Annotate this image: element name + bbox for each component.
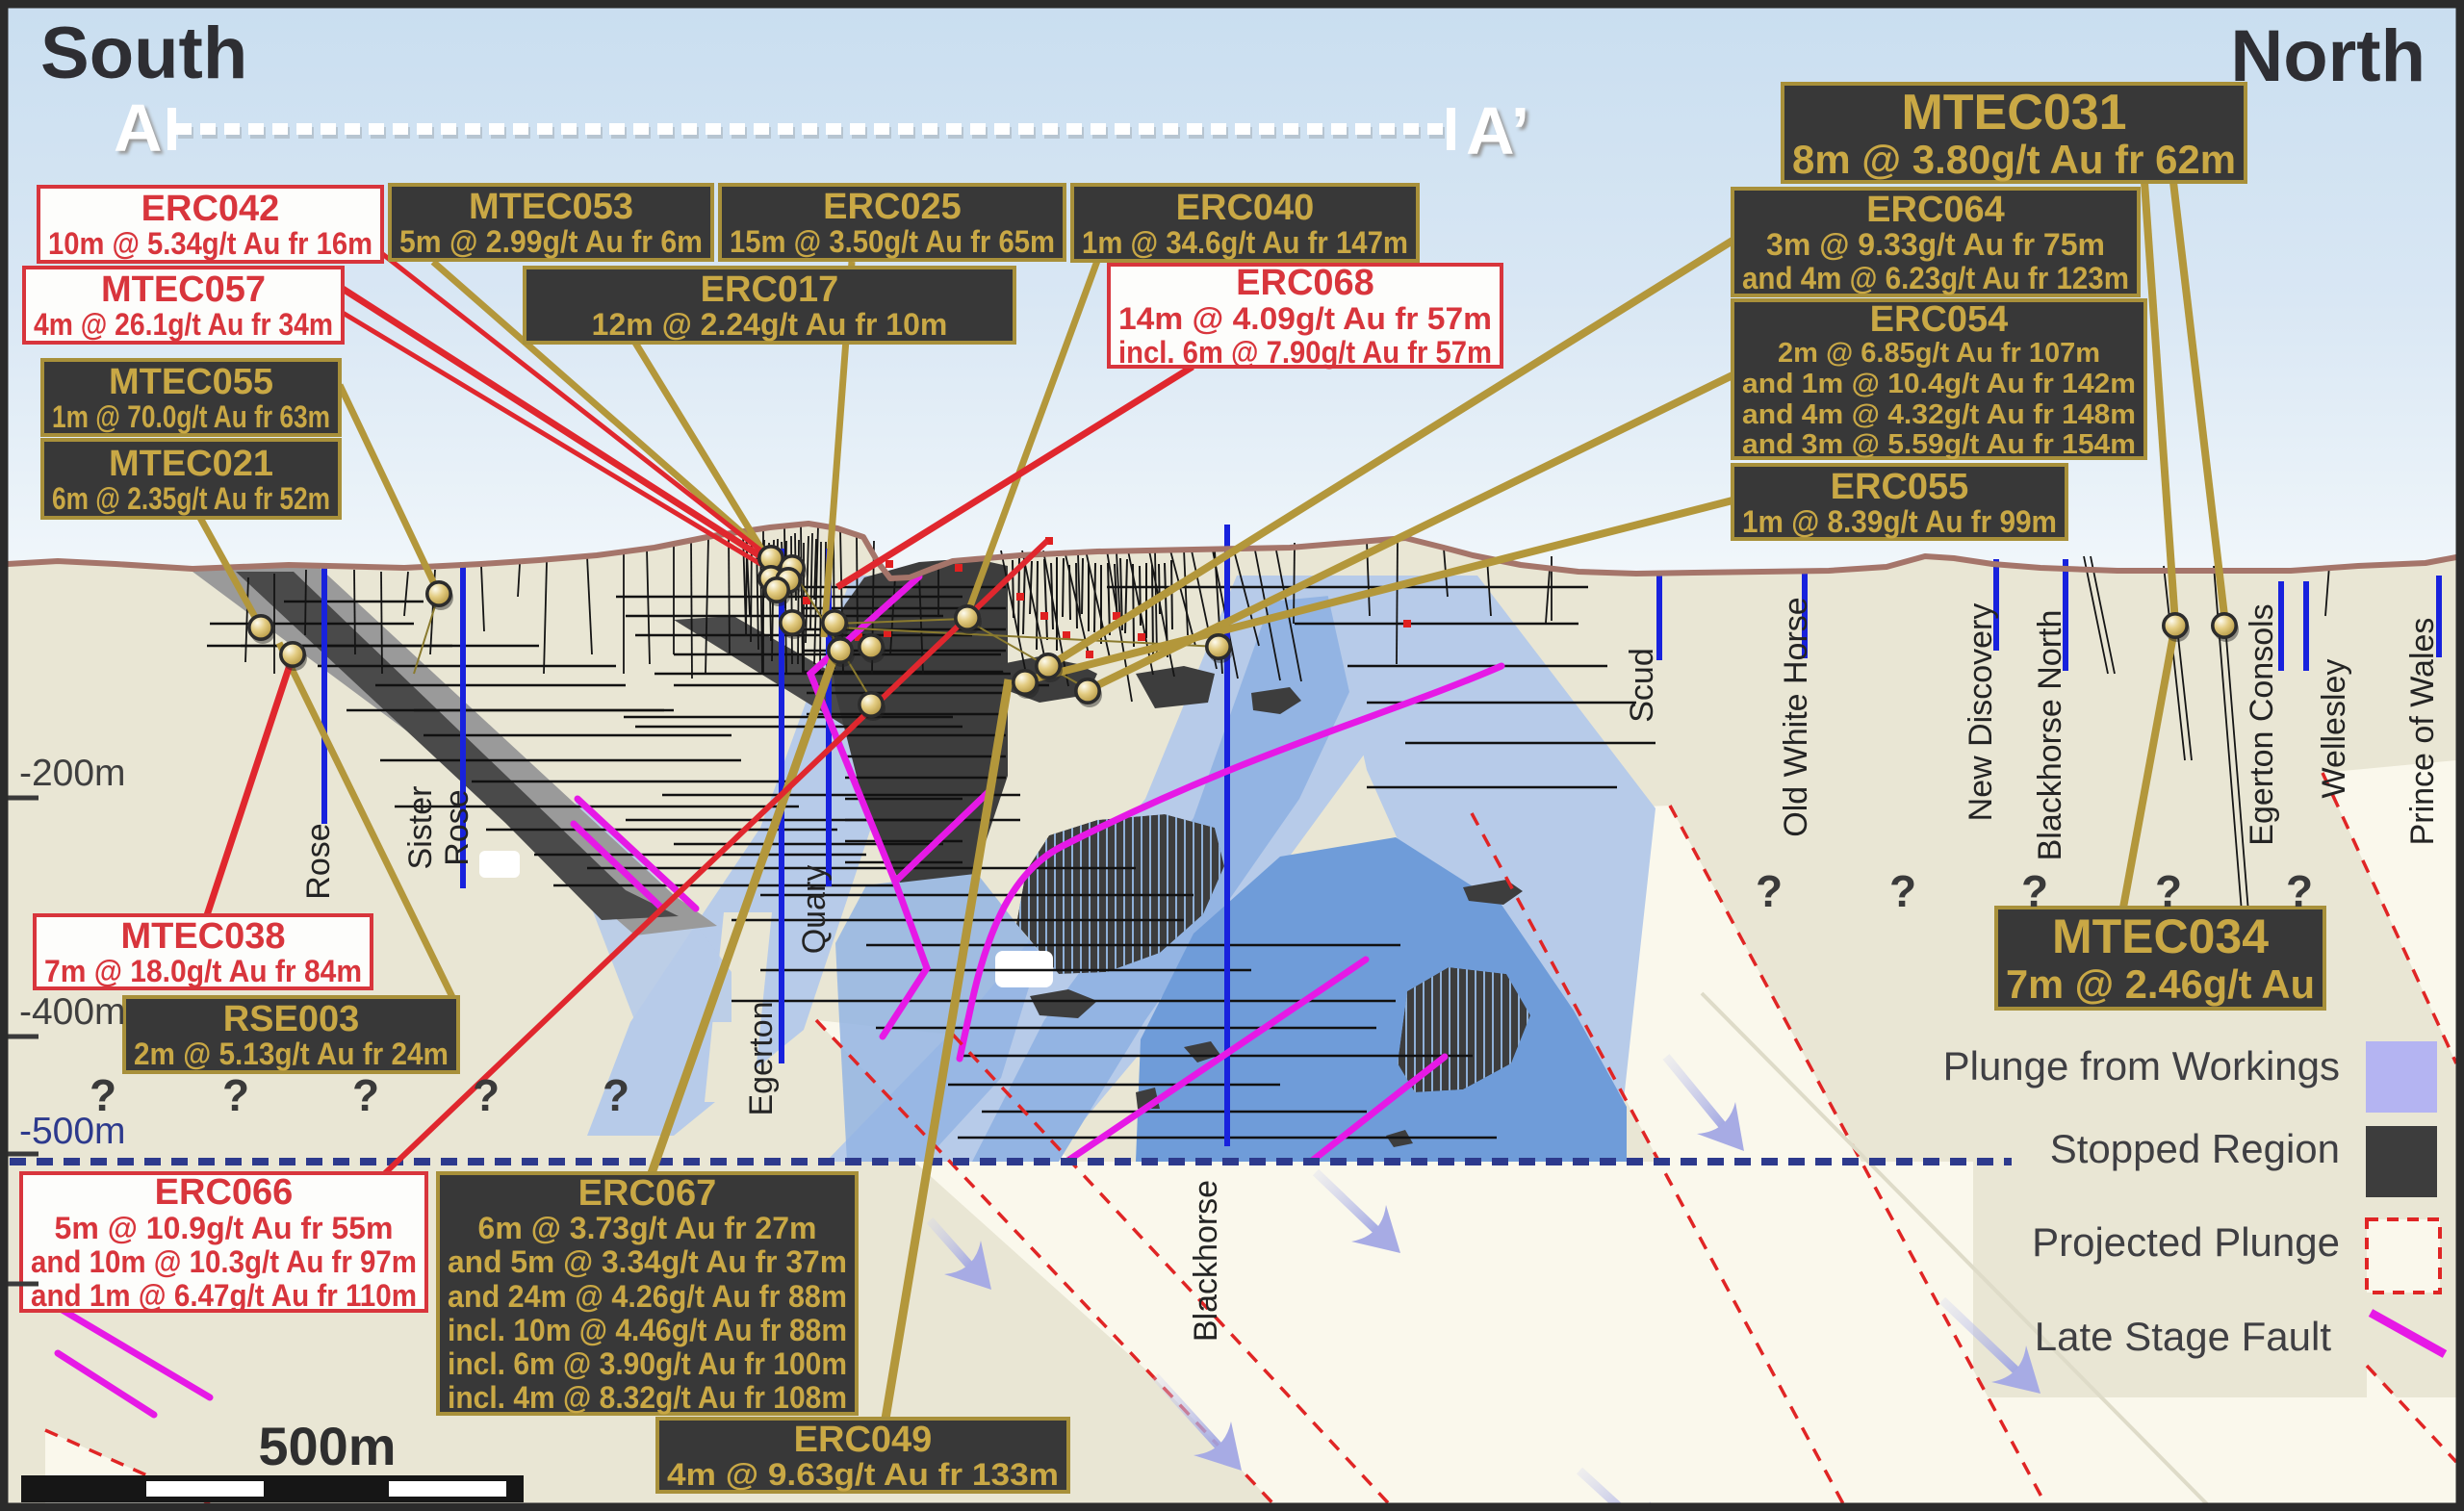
svg-text:A’: A’ xyxy=(1466,93,1529,168)
svg-text:?: ? xyxy=(603,1070,629,1120)
svg-text:and 1m @ 6.47g/t Au fr 110m: and 1m @ 6.47g/t Au fr 110m xyxy=(31,1278,417,1313)
svg-text:1m @ 8.39g/t Au fr 99m: 1m @ 8.39g/t Au fr 99m xyxy=(1742,504,2057,539)
svg-text:South: South xyxy=(40,13,247,94)
svg-text:and 24m @ 4.26g/t Au fr 88m: and 24m @ 4.26g/t Au fr 88m xyxy=(448,1279,847,1314)
svg-text:Sister: Sister xyxy=(402,786,439,870)
svg-text:1m @ 70.0g/t Au fr 63m: 1m @ 70.0g/t Au fr 63m xyxy=(52,399,330,434)
svg-text:and 4m @ 4.32g/t Au fr 148m: and 4m @ 4.32g/t Au fr 148m xyxy=(1742,399,2136,430)
svg-text:A: A xyxy=(114,90,163,166)
svg-text:incl. 6m @ 7.90g/t Au fr 57m: incl. 6m @ 7.90g/t Au fr 57m xyxy=(1118,335,1492,370)
svg-text:ERC066: ERC066 xyxy=(155,1172,294,1213)
svg-text:ERC040: ERC040 xyxy=(1176,188,1315,228)
svg-text:Old White Horse: Old White Horse xyxy=(1778,597,1814,836)
svg-text:6m @ 2.35g/t Au fr 52m: 6m @ 2.35g/t Au fr 52m xyxy=(52,481,330,516)
svg-text:ERC054: ERC054 xyxy=(1870,299,2009,340)
svg-text:Rose: Rose xyxy=(439,789,475,865)
svg-text:14m @ 4.09g/t Au fr 57m: 14m @ 4.09g/t Au fr 57m xyxy=(1118,301,1492,336)
svg-text:ERC042: ERC042 xyxy=(141,189,280,229)
svg-text:Egerton Consols: Egerton Consols xyxy=(2244,603,2280,845)
svg-text:?: ? xyxy=(1889,866,1916,916)
svg-text:500m: 500m xyxy=(258,1416,396,1476)
svg-text:Rose: Rose xyxy=(300,823,337,899)
svg-text:Late Stage Fault: Late Stage Fault xyxy=(2035,1314,2332,1359)
svg-text:1m @ 34.6g/t Au fr 147m: 1m @ 34.6g/t Au fr 147m xyxy=(1082,225,1408,260)
svg-text:ERC025: ERC025 xyxy=(823,187,962,227)
svg-text:MTEC021: MTEC021 xyxy=(109,444,273,484)
svg-text:7m @ 18.0g/t Au fr 84m: 7m @ 18.0g/t Au fr 84m xyxy=(44,954,362,988)
svg-text:5m @ 2.99g/t Au fr 6m: 5m @ 2.99g/t Au fr 6m xyxy=(399,224,703,259)
svg-text:12m @ 2.24g/t Au fr 10m: 12m @ 2.24g/t Au fr 10m xyxy=(592,307,948,342)
svg-text:-500m: -500m xyxy=(19,1111,126,1152)
svg-text:?: ? xyxy=(2155,866,2182,916)
svg-text:incl. 4m @ 8.32g/t Au fr 108m: incl. 4m @ 8.32g/t Au fr 108m xyxy=(448,1380,847,1415)
svg-text:15m @ 3.50g/t Au fr 65m: 15m @ 3.50g/t Au fr 65m xyxy=(730,224,1055,259)
svg-text:Stopped Region: Stopped Region xyxy=(2050,1126,2340,1171)
svg-text:MTEC034: MTEC034 xyxy=(2052,909,2269,963)
svg-text:6m @ 3.73g/t Au fr 27m: 6m @ 3.73g/t Au fr 27m xyxy=(478,1211,817,1245)
svg-text:10m @ 5.34g/t Au fr 16m: 10m @ 5.34g/t Au fr 16m xyxy=(48,226,372,261)
svg-text:MTEC055: MTEC055 xyxy=(109,362,273,402)
svg-text:MTEC053: MTEC053 xyxy=(469,187,633,227)
svg-text:Scud: Scud xyxy=(1624,648,1660,723)
svg-text:Quary: Quary xyxy=(796,865,833,955)
svg-text:Blackhorse North: Blackhorse North xyxy=(2032,610,2068,861)
svg-text:4m @ 26.1g/t Au fr 34m: 4m @ 26.1g/t Au fr 34m xyxy=(34,307,333,342)
svg-text:4m @ 9.63g/t Au fr 133m: 4m @ 9.63g/t Au fr 133m xyxy=(667,1457,1059,1492)
svg-text:ERC067: ERC067 xyxy=(578,1173,717,1214)
svg-text:and 4m @ 6.23g/t Au fr 123m: and 4m @ 6.23g/t Au fr 123m xyxy=(1742,261,2129,295)
svg-text:?: ? xyxy=(2021,866,2048,916)
svg-text:incl. 6m @ 3.90g/t Au fr 100m: incl. 6m @ 3.90g/t Au fr 100m xyxy=(448,1346,847,1381)
svg-text:Blackhorse: Blackhorse xyxy=(1188,1180,1224,1342)
svg-text:and 3m @ 5.59g/t Au fr 154m: and 3m @ 5.59g/t Au fr 154m xyxy=(1742,429,2136,460)
svg-text:5m @ 10.9g/t Au fr 55m: 5m @ 10.9g/t Au fr 55m xyxy=(55,1211,394,1245)
svg-text:ERC055: ERC055 xyxy=(1831,467,1969,507)
svg-text:2m @ 6.85g/t Au fr 107m: 2m @ 6.85g/t Au fr 107m xyxy=(1778,338,2100,369)
svg-text:ERC068: ERC068 xyxy=(1236,263,1374,303)
svg-text:Prince of Wales: Prince of Wales xyxy=(2404,618,2441,846)
svg-text:3m @ 9.33g/t Au fr 75m: 3m @ 9.33g/t Au fr 75m xyxy=(1766,227,2105,262)
svg-text:ERC064: ERC064 xyxy=(1866,190,2005,230)
svg-text:MTEC038: MTEC038 xyxy=(120,916,285,957)
svg-text:Egerton: Egerton xyxy=(743,1001,780,1115)
svg-text:MTEC057: MTEC057 xyxy=(101,269,266,310)
svg-text:Projected Plunge: Projected Plunge xyxy=(2032,1219,2340,1265)
svg-text:?: ? xyxy=(1756,866,1783,916)
svg-text:and 1m @ 10.4g/t Au fr 142m: and 1m @ 10.4g/t Au fr 142m xyxy=(1742,369,2136,399)
svg-text:Wellesley: Wellesley xyxy=(2316,659,2352,799)
svg-text:?: ? xyxy=(352,1070,379,1120)
svg-text:?: ? xyxy=(2286,866,2313,916)
svg-text:?: ? xyxy=(222,1070,249,1120)
svg-text:-200m: -200m xyxy=(19,753,126,794)
svg-text:New Discovery: New Discovery xyxy=(1963,603,1999,822)
svg-text:ERC049: ERC049 xyxy=(794,1420,933,1460)
svg-text:RSE003: RSE003 xyxy=(223,999,360,1039)
svg-text:incl. 10m @ 4.46g/t Au fr 88m: incl. 10m @ 4.46g/t Au fr 88m xyxy=(448,1313,847,1347)
svg-text:8m @ 3.80g/t Au fr 62m: 8m @ 3.80g/t Au fr 62m xyxy=(1792,137,2236,182)
svg-text:and 5m @ 3.34g/t Au fr 37m: and 5m @ 3.34g/t Au fr 37m xyxy=(448,1244,847,1279)
svg-text:?: ? xyxy=(473,1070,500,1120)
svg-text:ERC017: ERC017 xyxy=(701,269,839,310)
svg-text:and 10m @ 10.3g/t Au fr 97m: and 10m @ 10.3g/t Au fr 97m xyxy=(31,1244,417,1279)
svg-text:North: North xyxy=(2230,15,2425,97)
svg-text:-400m: -400m xyxy=(19,991,126,1033)
svg-text:MTEC031: MTEC031 xyxy=(1901,85,2126,141)
svg-text:2m @ 5.13g/t Au fr 24m: 2m @ 5.13g/t Au fr 24m xyxy=(134,1037,449,1071)
svg-text:7m @ 2.46g/t Au: 7m @ 2.46g/t Au xyxy=(2006,961,2315,1007)
svg-text:Plunge from Workings: Plunge from Workings xyxy=(1943,1043,2340,1088)
